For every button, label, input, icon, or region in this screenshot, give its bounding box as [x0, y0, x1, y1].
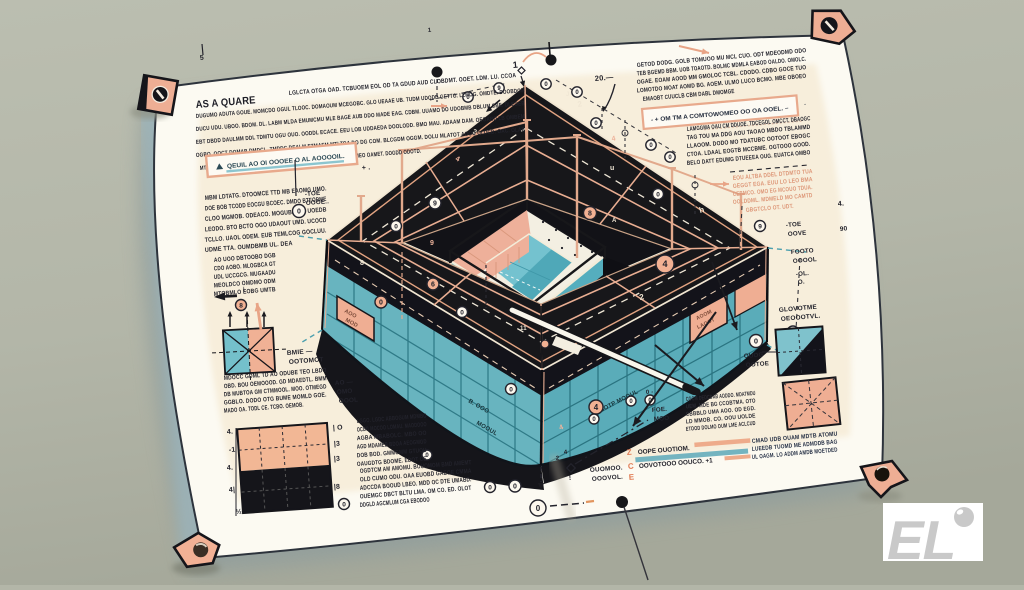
svg-text:|3: |3: [334, 456, 341, 463]
svg-text:4.: 4.: [227, 429, 234, 436]
svg-text:u: u: [610, 165, 614, 172]
svg-text:½: ½: [236, 508, 243, 516]
svg-text:4: 4: [594, 403, 599, 412]
svg-text:0: 0: [488, 484, 492, 491]
svg-text:11: 11: [520, 326, 527, 332]
svg-text:A: A: [612, 218, 617, 224]
svg-text:9: 9: [758, 223, 762, 230]
svg-text:0: 0: [394, 223, 398, 230]
svg-text:1: 1: [512, 60, 518, 70]
svg-text:0: 0: [379, 300, 383, 307]
svg-text:-TOE: -TOE: [305, 190, 321, 198]
svg-text:90: 90: [840, 225, 848, 233]
svg-text:20.—: 20.—: [594, 72, 614, 83]
svg-text:0: 0: [342, 501, 346, 508]
svg-text:OOVE: OOVE: [788, 230, 807, 238]
svg-text:4: 4: [662, 259, 667, 269]
svg-text:Z: Z: [626, 448, 632, 457]
svg-text:4.: 4.: [227, 465, 234, 472]
svg-text:AO —: AO —: [335, 379, 354, 387]
svg-text:+ .: + .: [362, 164, 371, 172]
svg-text:-1: -1: [229, 447, 236, 454]
svg-text:9: 9: [433, 201, 437, 208]
svg-text:9: 9: [430, 240, 434, 247]
svg-text:8: 8: [588, 211, 592, 218]
svg-text:-TOE: -TOE: [786, 221, 802, 229]
svg-text:OMO: OMO: [337, 388, 353, 396]
svg-text:|8: |8: [334, 484, 341, 491]
svg-text:5: 5: [200, 55, 205, 62]
svg-text:| O: | O: [333, 424, 344, 432]
svg-text:0: 0: [297, 209, 301, 216]
svg-text:0: 0: [536, 504, 541, 513]
svg-text:0: 0: [754, 337, 758, 346]
svg-text:-OL.: -OL.: [796, 270, 810, 278]
svg-text:4|: 4|: [229, 487, 236, 494]
svg-text:EL: EL: [887, 509, 955, 571]
svg-text:8: 8: [360, 260, 364, 267]
svg-text:|3: |3: [334, 441, 341, 448]
svg-text:J: J: [566, 92, 570, 98]
svg-text:8: 8: [239, 302, 243, 309]
svg-text:C: C: [628, 462, 635, 471]
svg-text:6: 6: [431, 282, 435, 289]
svg-text:0: 0: [656, 191, 660, 198]
svg-text:0: 0: [460, 309, 464, 316]
svg-text:0 -: 0 -: [646, 389, 654, 396]
svg-text:MOO: MOO: [654, 415, 670, 423]
svg-text:0: 0: [513, 484, 517, 491]
svg-text:4.: 4.: [838, 200, 845, 208]
svg-text:FOE.: FOE.: [652, 406, 668, 414]
svg-text:0: 0: [509, 386, 513, 393]
